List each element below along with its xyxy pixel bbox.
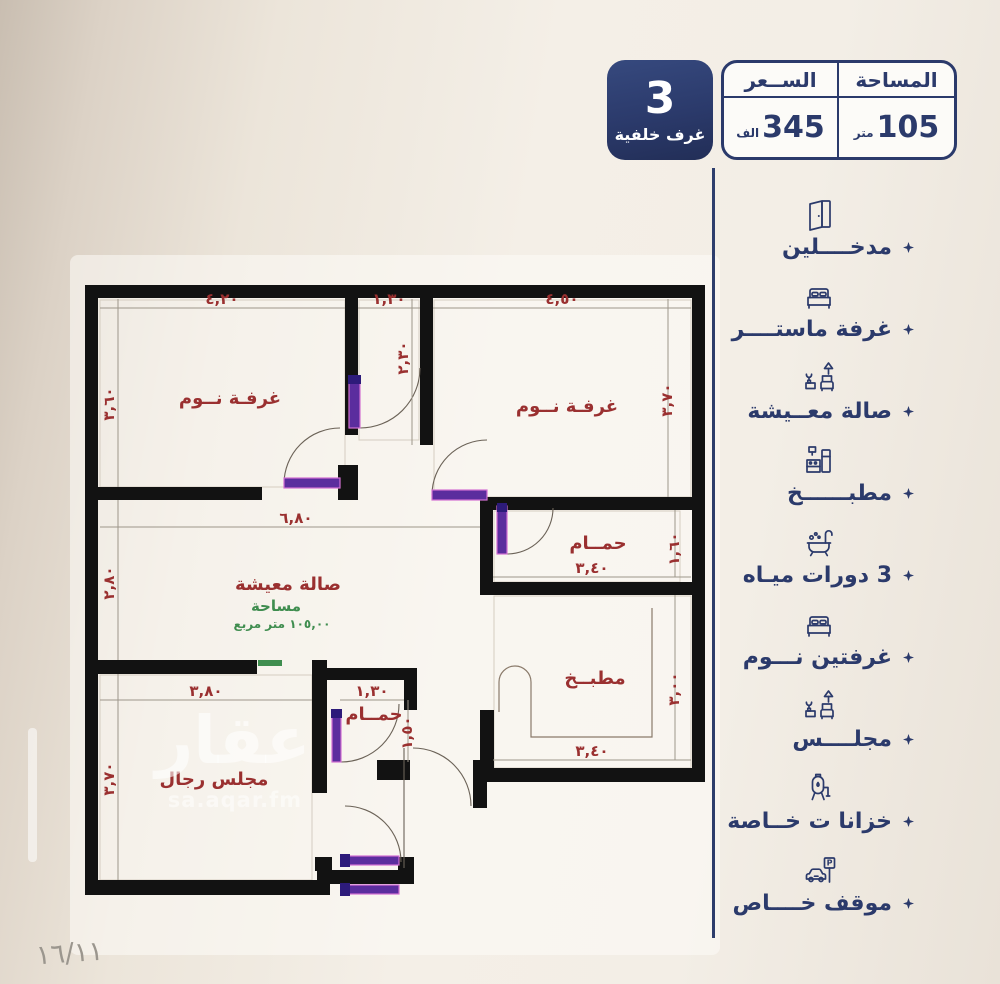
living-area-value: ١٠٥,٠٠ متر مربع [234, 617, 331, 631]
feature-label: صالة معــيشة [747, 399, 892, 424]
diamond-bullet-icon [903, 570, 914, 581]
area-unit: متر [854, 126, 874, 140]
green-wall-mark [258, 660, 282, 666]
dim-hall-width: ١,٣٠ [372, 290, 405, 308]
price-value: 345 [762, 110, 825, 145]
rooms-count-label: غرف خلفية [615, 125, 706, 144]
diamond-bullet-icon [903, 488, 914, 499]
dim-bath-width: ٣,٤٠ [575, 559, 608, 577]
door-leaves [284, 378, 507, 894]
dim-kitchen-height: ٣,٠٠ [665, 672, 683, 705]
room-label-small-bathroom: حمــام [345, 704, 402, 725]
price-value-cell: 345 الف [724, 98, 839, 157]
sofa-icon [703, 360, 935, 396]
watermark-bar [28, 728, 37, 862]
feature-bathrooms: 3 دورات ميـاه [728, 524, 960, 606]
area-value: 105 [877, 110, 940, 145]
kitchen-icon [703, 442, 935, 478]
bathtub-icon [703, 524, 935, 560]
feature-parking: P موقف خــــاص [728, 852, 960, 934]
dim-majlis-width: ٣,٨٠ [189, 682, 222, 700]
diamond-bullet-icon [903, 898, 914, 909]
feature-entrances: مدخــــلين [728, 196, 960, 278]
bed-icon [703, 278, 935, 314]
dim-bed2-height: ٣,٧٠ [658, 383, 676, 416]
dim-bath-height: ١,٦٠ [665, 532, 683, 565]
feature-label: موقف خــــاص [733, 891, 892, 916]
feature-label: 3 دورات ميـاه [743, 563, 892, 588]
diamond-bullet-icon [903, 734, 914, 745]
price-header: الســعر [724, 63, 839, 98]
diamond-bullet-icon [903, 242, 914, 253]
price-area-table: الســعر المساحة 345 الف 105 متر [721, 60, 957, 160]
dim-living-width: ٦,٨٠ [279, 509, 312, 527]
room-label-living: صالة معيشة [235, 574, 341, 595]
dim-majlis-height: ٣,٧٠ [100, 762, 118, 795]
dim-bed1-width: ٤,٢٠ [205, 290, 238, 308]
feature-living-hall: صالة معــيشة [728, 360, 960, 442]
rooms-count: 3 [645, 76, 676, 122]
room-label-bathroom: حمــام [569, 533, 626, 554]
diamond-bullet-icon [903, 816, 914, 827]
door-icon [703, 196, 935, 232]
feature-master-room: غرفة ماستــــر [728, 278, 960, 360]
price-unit: الف [736, 126, 759, 140]
dim-living-height: ٢,٨٠ [100, 566, 118, 599]
diamond-bullet-icon [903, 324, 914, 335]
living-area-label: مساحة [251, 597, 301, 615]
rooms-count-badge: 3 غرف خلفية [607, 60, 713, 160]
floor-plan: ٤,٢٠ ٣,٦٠ ١,٣٠ ٢,٣٠ ٤,٥٠ ٣,٧٠ ٦,٨٠ ٢,٨٠ … [85, 280, 705, 940]
area-header: المساحة [839, 63, 954, 98]
feature-label: مدخــــلين [782, 235, 892, 260]
room-label-kitchen: مطبــخ [564, 668, 625, 689]
parking-letter: P [827, 859, 833, 868]
feature-majlis: مجلــــس [728, 688, 960, 770]
features-list: مدخــــلين غرفة ماستــــر صالة معــيشة م… [728, 196, 960, 934]
sofa-icon [703, 688, 935, 724]
feature-label: غرفة ماستــــر [732, 317, 892, 342]
tank-icon [703, 770, 935, 806]
room-label-bedroom2: غرفـة نــوم [516, 396, 618, 417]
feature-label: غرفتين نـــوم [743, 645, 892, 670]
diamond-bullet-icon [903, 406, 914, 417]
bed-icon [703, 606, 935, 642]
feature-tanks: خزانا ت خــاصة [728, 770, 960, 852]
feature-label: مطبــــــخ [787, 481, 892, 506]
feature-label: مجلــــس [792, 727, 892, 752]
door-hinges [331, 375, 507, 896]
feature-two-bedrooms: غرفتين نـــوم [728, 606, 960, 688]
dim-bed1-height: ٣,٦٠ [100, 387, 118, 420]
area-value-cell: 105 متر [839, 98, 954, 157]
dim-hall-height: ٢,٣٠ [394, 341, 412, 374]
room-label-bedroom1: غرفـة نــوم [179, 388, 281, 409]
dim-kitchen-width: ٣,٤٠ [575, 742, 608, 760]
diamond-bullet-icon [903, 652, 914, 663]
watermark-logo: عقار [148, 702, 318, 779]
feature-kitchen: مطبــــــخ [728, 442, 960, 524]
parking-icon: P [703, 852, 935, 888]
dim-bed2-width: ٤,٥٠ [545, 290, 578, 308]
watermark-site: sa.aqar.fm [160, 788, 310, 812]
page: 3 غرف خلفية الســعر المساحة 345 الف 105 … [0, 0, 1000, 984]
feature-label: خزانا ت خــاصة [727, 809, 892, 834]
page-number: ١٦/١١ [35, 936, 104, 972]
dim-sbath-width: ١,٣٠ [355, 682, 388, 700]
